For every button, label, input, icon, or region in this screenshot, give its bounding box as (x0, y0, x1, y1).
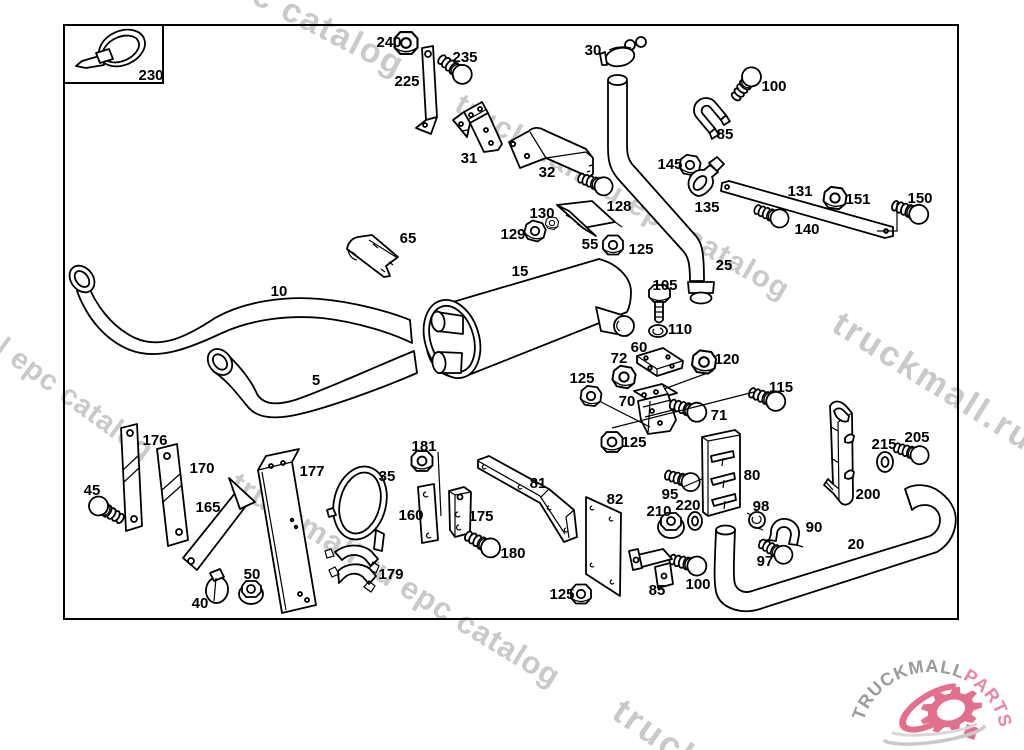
svg-text:205: 205 (904, 429, 929, 446)
svg-text:180: 180 (500, 545, 525, 562)
svg-text:179: 179 (378, 566, 403, 583)
svg-text:125: 125 (549, 586, 574, 603)
svg-text:176: 176 (142, 432, 167, 449)
svg-text:100: 100 (685, 576, 710, 593)
svg-text:100: 100 (761, 78, 786, 95)
svg-text:181: 181 (411, 438, 436, 455)
svg-text:165: 165 (195, 499, 220, 516)
svg-text:125: 125 (621, 434, 646, 451)
svg-text:70: 70 (619, 393, 636, 410)
svg-text:15: 15 (512, 263, 529, 280)
svg-text:10: 10 (271, 283, 288, 300)
svg-text:71: 71 (711, 407, 728, 424)
svg-text:115: 115 (769, 379, 793, 396)
svg-text:30: 30 (585, 42, 602, 59)
svg-text:129: 129 (500, 226, 525, 243)
svg-text:175: 175 (468, 508, 493, 525)
svg-text:97: 97 (757, 553, 774, 570)
svg-text:210: 210 (646, 503, 671, 520)
svg-text:105: 105 (652, 277, 677, 294)
svg-text:32: 32 (539, 164, 556, 181)
svg-text:25: 25 (716, 257, 733, 274)
svg-text:5: 5 (312, 372, 320, 389)
svg-text:200: 200 (855, 486, 880, 503)
svg-text:31: 31 (461, 150, 478, 167)
svg-text:82: 82 (607, 491, 624, 508)
svg-text:170: 170 (189, 460, 214, 477)
svg-text:145: 145 (657, 156, 682, 173)
svg-text:230: 230 (138, 67, 163, 84)
svg-text:55: 55 (582, 236, 599, 253)
svg-text:45: 45 (84, 482, 101, 499)
svg-text:60: 60 (631, 339, 648, 356)
svg-text:20: 20 (848, 536, 865, 553)
svg-text:80: 80 (744, 467, 761, 484)
svg-text:220: 220 (675, 497, 700, 514)
svg-text:125: 125 (569, 370, 594, 387)
svg-text:110: 110 (668, 321, 692, 338)
svg-text:130: 130 (529, 205, 554, 222)
svg-text:120: 120 (714, 351, 739, 368)
svg-text:40: 40 (192, 595, 209, 612)
svg-text:140: 140 (794, 221, 819, 238)
svg-text:215: 215 (871, 436, 896, 453)
svg-text:85: 85 (717, 126, 734, 143)
svg-text:131: 131 (787, 183, 812, 200)
svg-text:235: 235 (452, 49, 477, 66)
svg-text:150: 150 (907, 190, 932, 207)
svg-text:72: 72 (611, 350, 628, 367)
svg-text:65: 65 (400, 230, 417, 247)
svg-text:90: 90 (806, 519, 823, 536)
svg-text:240: 240 (376, 34, 401, 51)
svg-text:151: 151 (845, 191, 870, 208)
svg-text:225: 225 (394, 73, 419, 90)
svg-text:128: 128 (606, 198, 631, 215)
svg-text:125: 125 (628, 241, 653, 258)
svg-text:135: 135 (694, 199, 719, 216)
svg-text:177: 177 (299, 463, 324, 480)
svg-text:98: 98 (753, 498, 770, 515)
svg-text:85: 85 (649, 582, 666, 599)
svg-text:81: 81 (530, 475, 547, 492)
svg-text:160: 160 (398, 507, 423, 524)
svg-text:50: 50 (244, 566, 261, 583)
svg-text:35: 35 (379, 468, 396, 485)
